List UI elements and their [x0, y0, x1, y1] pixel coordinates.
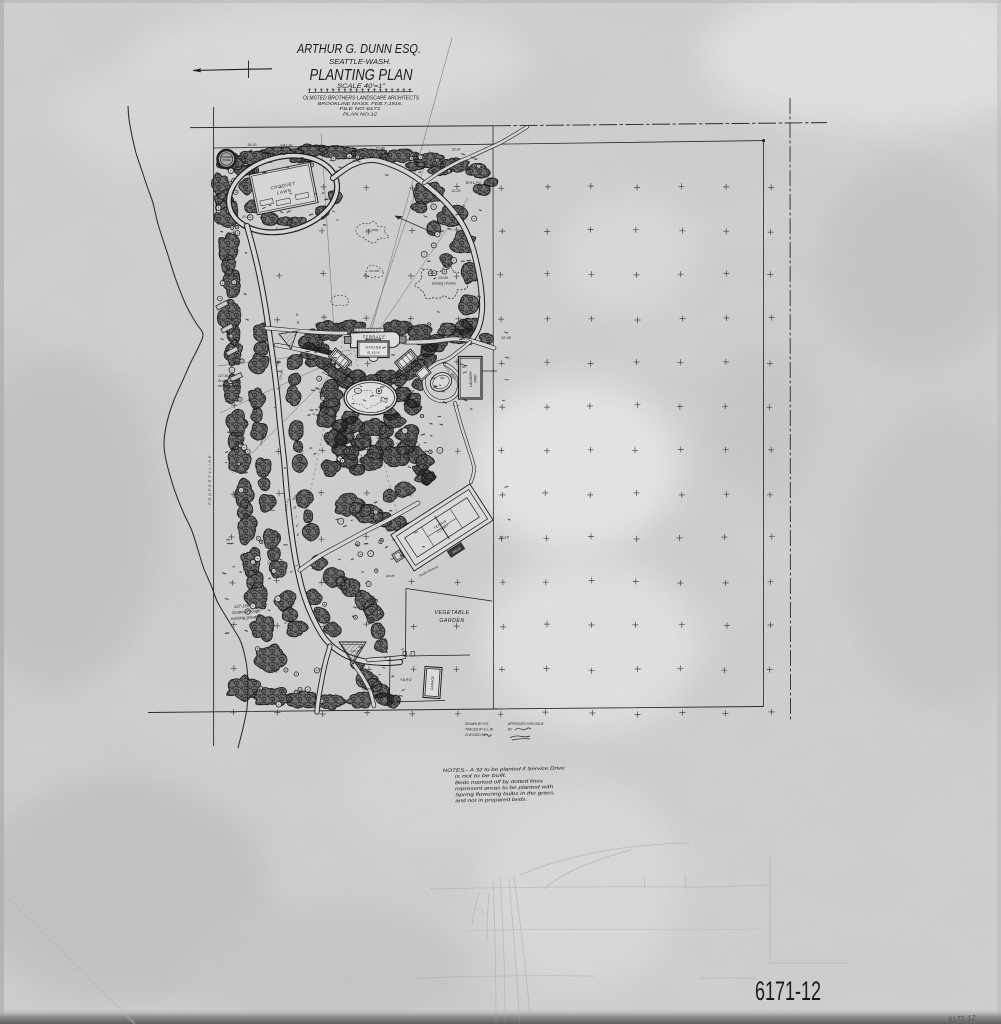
svg-text:6171-12: 6171-12	[755, 976, 821, 1006]
svg-text:D: D	[293, 496, 296, 501]
svg-text:R: R	[297, 321, 300, 325]
svg-text:145-15: 145-15	[351, 649, 360, 653]
svg-text:148-85: 148-85	[385, 574, 395, 578]
svg-text:FILE NO-6171: FILE NO-6171	[340, 106, 381, 112]
svg-text:32-45: 32-45	[501, 336, 512, 340]
svg-text:SALAL: SALAL	[466, 180, 483, 185]
svg-text:PLANTING PLAN: PLANTING PLAN	[310, 67, 414, 84]
svg-text:32-24: 32-24	[452, 148, 461, 152]
svg-text:SALAL: SALAL	[280, 144, 294, 148]
svg-text:is not to be built.: is not to be built.	[455, 773, 507, 780]
svg-text:52-28: 52-28	[452, 189, 461, 193]
svg-text:V: V	[296, 523, 299, 528]
svg-text:APPROVED FOR ISSUE: APPROVED FOR ISSUE	[507, 722, 545, 726]
svg-text:147-2000: 147-2000	[366, 228, 379, 232]
svg-text:TRACED BY E.L.W.: TRACED BY E.L.W.	[465, 728, 494, 732]
svg-text:137-200: 137-200	[369, 269, 380, 273]
svg-text:PLAN NO.12: PLAN NO.12	[343, 111, 377, 117]
svg-text:I: I	[299, 329, 300, 333]
svg-text:32-10: 32-10	[499, 536, 510, 540]
svg-text:P R O P E R T Y L I N E: P R O P E R T Y L I N E	[208, 455, 212, 505]
svg-text:HOUSE: HOUSE	[222, 159, 231, 162]
svg-text:SEATTLE-WASH.: SEATTLE-WASH.	[329, 57, 391, 66]
svg-text:130-99: 130-99	[438, 276, 448, 280]
svg-text:Existing Cherries: Existing Cherries	[432, 282, 456, 286]
svg-text:138-1000: 138-1000	[346, 457, 358, 461]
svg-text:72-80: 72-80	[375, 147, 384, 151]
svg-text:Scatter through: Scatter through	[218, 379, 241, 383]
svg-text:existing growth: existing growth	[218, 384, 240, 388]
svg-text:YARD: YARD	[474, 374, 478, 384]
svg-text:145-70: 145-70	[361, 687, 371, 691]
svg-text:DRAWN BY H.S.: DRAWN BY H.S.	[465, 722, 489, 726]
svg-text:EL.612-0: EL.612-0	[367, 350, 380, 354]
svg-text:127-60: 127-60	[218, 374, 228, 378]
svg-text:CHECKED BY: CHECKED BY	[465, 733, 487, 737]
svg-text:R: R	[294, 505, 297, 510]
svg-text:GARDEN: GARDEN	[439, 618, 464, 624]
svg-text:ARTHUR G. DUNN ESQ.: ARTHUR G. DUNN ESQ.	[296, 42, 421, 56]
svg-text:D: D	[296, 313, 299, 317]
svg-text:YARD: YARD	[400, 678, 412, 682]
svg-text:LAUNDRY: LAUNDRY	[469, 370, 473, 387]
svg-text:E: E	[297, 532, 300, 537]
svg-text:OLMSTED BROTHERS·LANDSCAPE ARC: OLMSTED BROTHERS·LANDSCAPE ARCHITECTS	[303, 96, 420, 102]
svg-text:43-47: 43-47	[242, 215, 250, 219]
svg-text:VEGETABLE: VEGETABLE	[435, 610, 470, 616]
svg-text:BROOKLINE MASS. FEB.7,1916.: BROOKLINE MASS. FEB.7,1916.	[318, 101, 403, 107]
svg-text:54-30: 54-30	[248, 143, 257, 147]
svg-text:HOUSE: HOUSE	[365, 344, 381, 349]
